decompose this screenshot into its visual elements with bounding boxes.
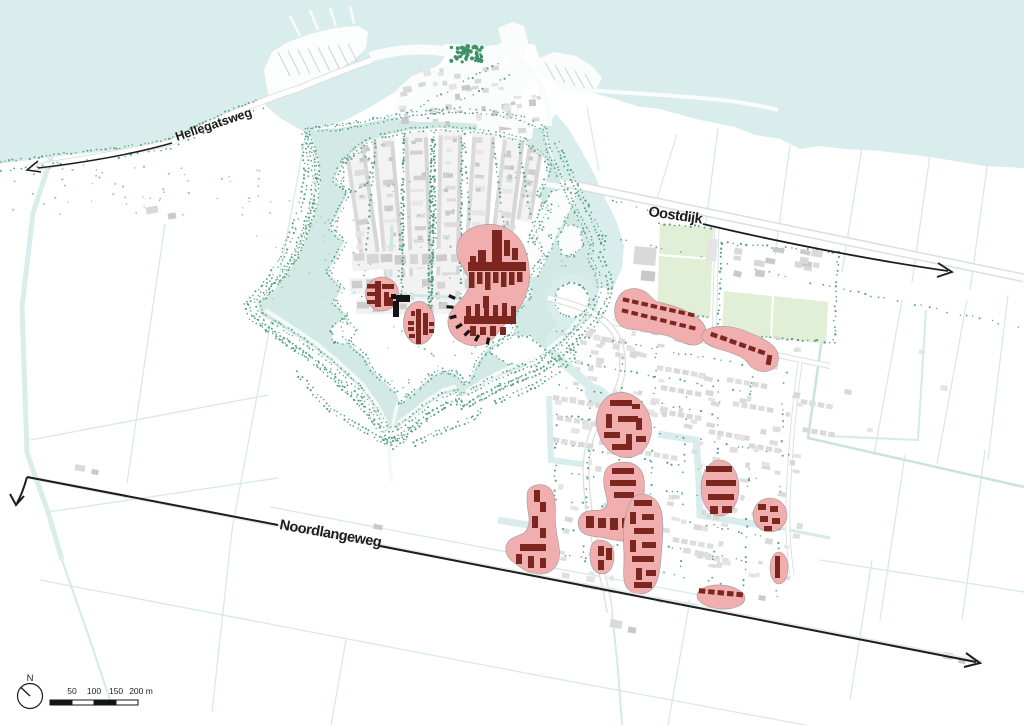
svg-text:N: N [27, 673, 34, 684]
svg-text:50: 50 [67, 686, 77, 696]
svg-text:200 m: 200 m [129, 686, 153, 696]
svg-text:150: 150 [109, 686, 123, 696]
svg-text:100: 100 [87, 686, 101, 696]
